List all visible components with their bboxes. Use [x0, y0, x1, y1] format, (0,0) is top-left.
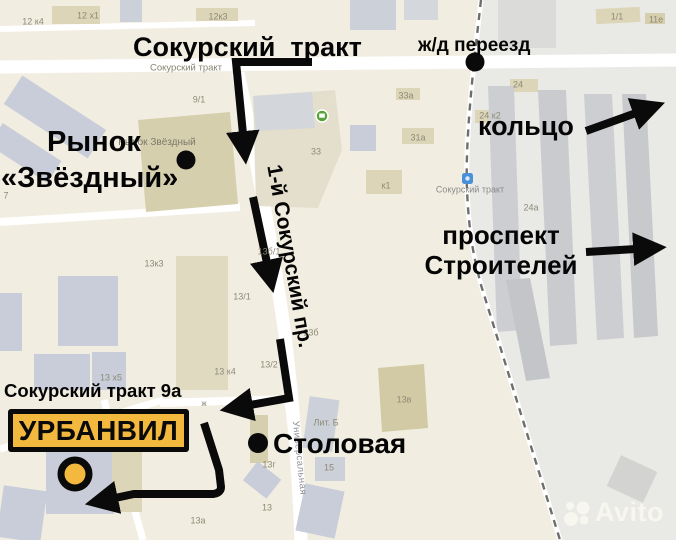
bus-stop-icon: [462, 173, 473, 184]
shop-poi-icon: [316, 110, 328, 122]
bldg-label: 12 к4: [22, 18, 43, 27]
bldg-label: 24а: [523, 204, 538, 213]
bldg-label: 13к3: [145, 260, 164, 269]
annotation-address: Сокурский тракт 9а: [4, 381, 181, 400]
avito-watermark: Avito: [562, 497, 664, 528]
canteen-dot: [248, 433, 268, 453]
bldg-label: 12 х1: [77, 12, 99, 21]
bldg-label: Лит. Б: [314, 419, 339, 428]
bldg-label: 13в: [397, 396, 412, 405]
bldg-label: 13г: [262, 461, 275, 470]
bldg-label: 1/1: [611, 13, 624, 22]
bldg-label: 13а: [190, 517, 205, 526]
bldg-label: 13 к4: [214, 368, 235, 377]
bldg-label: 13: [262, 504, 272, 513]
bldg-label: 33а: [398, 92, 413, 101]
bldg-label: к1: [382, 182, 391, 191]
bus-stop-label: Сокурский тракт: [436, 186, 504, 195]
bldg-label: 13/2: [260, 361, 278, 370]
annotation-market-line1: Рынок: [47, 127, 141, 157]
annotation-prospect-line2: Строителей: [415, 250, 587, 280]
annotation-rail-crossing: ж/д переезд: [418, 36, 530, 56]
destination-plate-label: УРБАНВИЛ: [19, 415, 179, 447]
bldg-label: 13/1: [233, 293, 251, 302]
bldg-label: 9/1: [193, 96, 206, 105]
pedestrian-symbol: ж: [201, 400, 206, 408]
market-dot: [177, 151, 196, 170]
destination-plate: УРБАНВИЛ: [8, 409, 189, 452]
map-image[interactable]: 12 к4 12 х1 12к3 1/1 11е Сокурский тракт…: [0, 0, 676, 540]
avito-watermark-text: Avito: [595, 497, 664, 528]
annotation-prospect: проспект Строителей: [415, 220, 587, 280]
bldg-label: 24: [513, 81, 523, 90]
bldg-label: 15: [324, 464, 334, 473]
bldg-label: 31а: [410, 134, 425, 143]
bldg-label: 33: [311, 148, 321, 157]
annotation-main-road: Сокурский тракт: [133, 33, 362, 61]
road-label: Сокурский тракт: [150, 63, 222, 73]
prospect-arrow: [586, 249, 636, 252]
bldg-label: 11е: [649, 16, 663, 25]
avito-logo-icon: [562, 498, 592, 528]
destination-marker: [61, 460, 89, 488]
annotation-prospect-line1: проспект: [415, 220, 587, 250]
annotation-ring: кольцо: [478, 112, 574, 140]
annotation-canteen: Столовая: [273, 429, 406, 458]
annotation-market-line2: «Звёздный»: [1, 163, 178, 193]
bldg-label: 12к3: [209, 13, 228, 22]
